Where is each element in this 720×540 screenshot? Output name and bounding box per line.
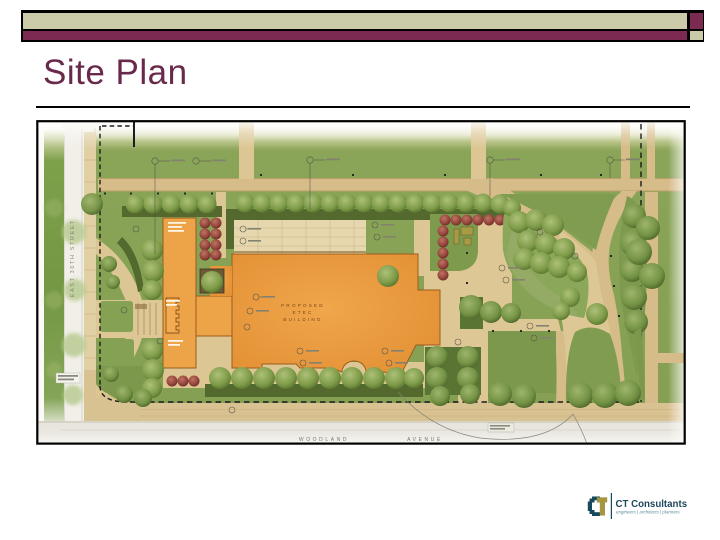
svg-text:CT Consultants: CT Consultants bbox=[616, 499, 688, 510]
svg-text:PROPOSED: PROPOSED bbox=[281, 303, 325, 308]
svg-text:EAST 30TH STREET: EAST 30TH STREET bbox=[70, 219, 76, 297]
svg-text:BUILDING: BUILDING bbox=[283, 317, 322, 322]
svg-text:engineers | architects | plann: engineers | architects | planners bbox=[616, 510, 680, 515]
svg-text:AVENUE: AVENUE bbox=[407, 437, 443, 443]
svg-text:WOODLAND: WOODLAND bbox=[299, 437, 349, 443]
svg-text:ETEC: ETEC bbox=[292, 310, 313, 315]
